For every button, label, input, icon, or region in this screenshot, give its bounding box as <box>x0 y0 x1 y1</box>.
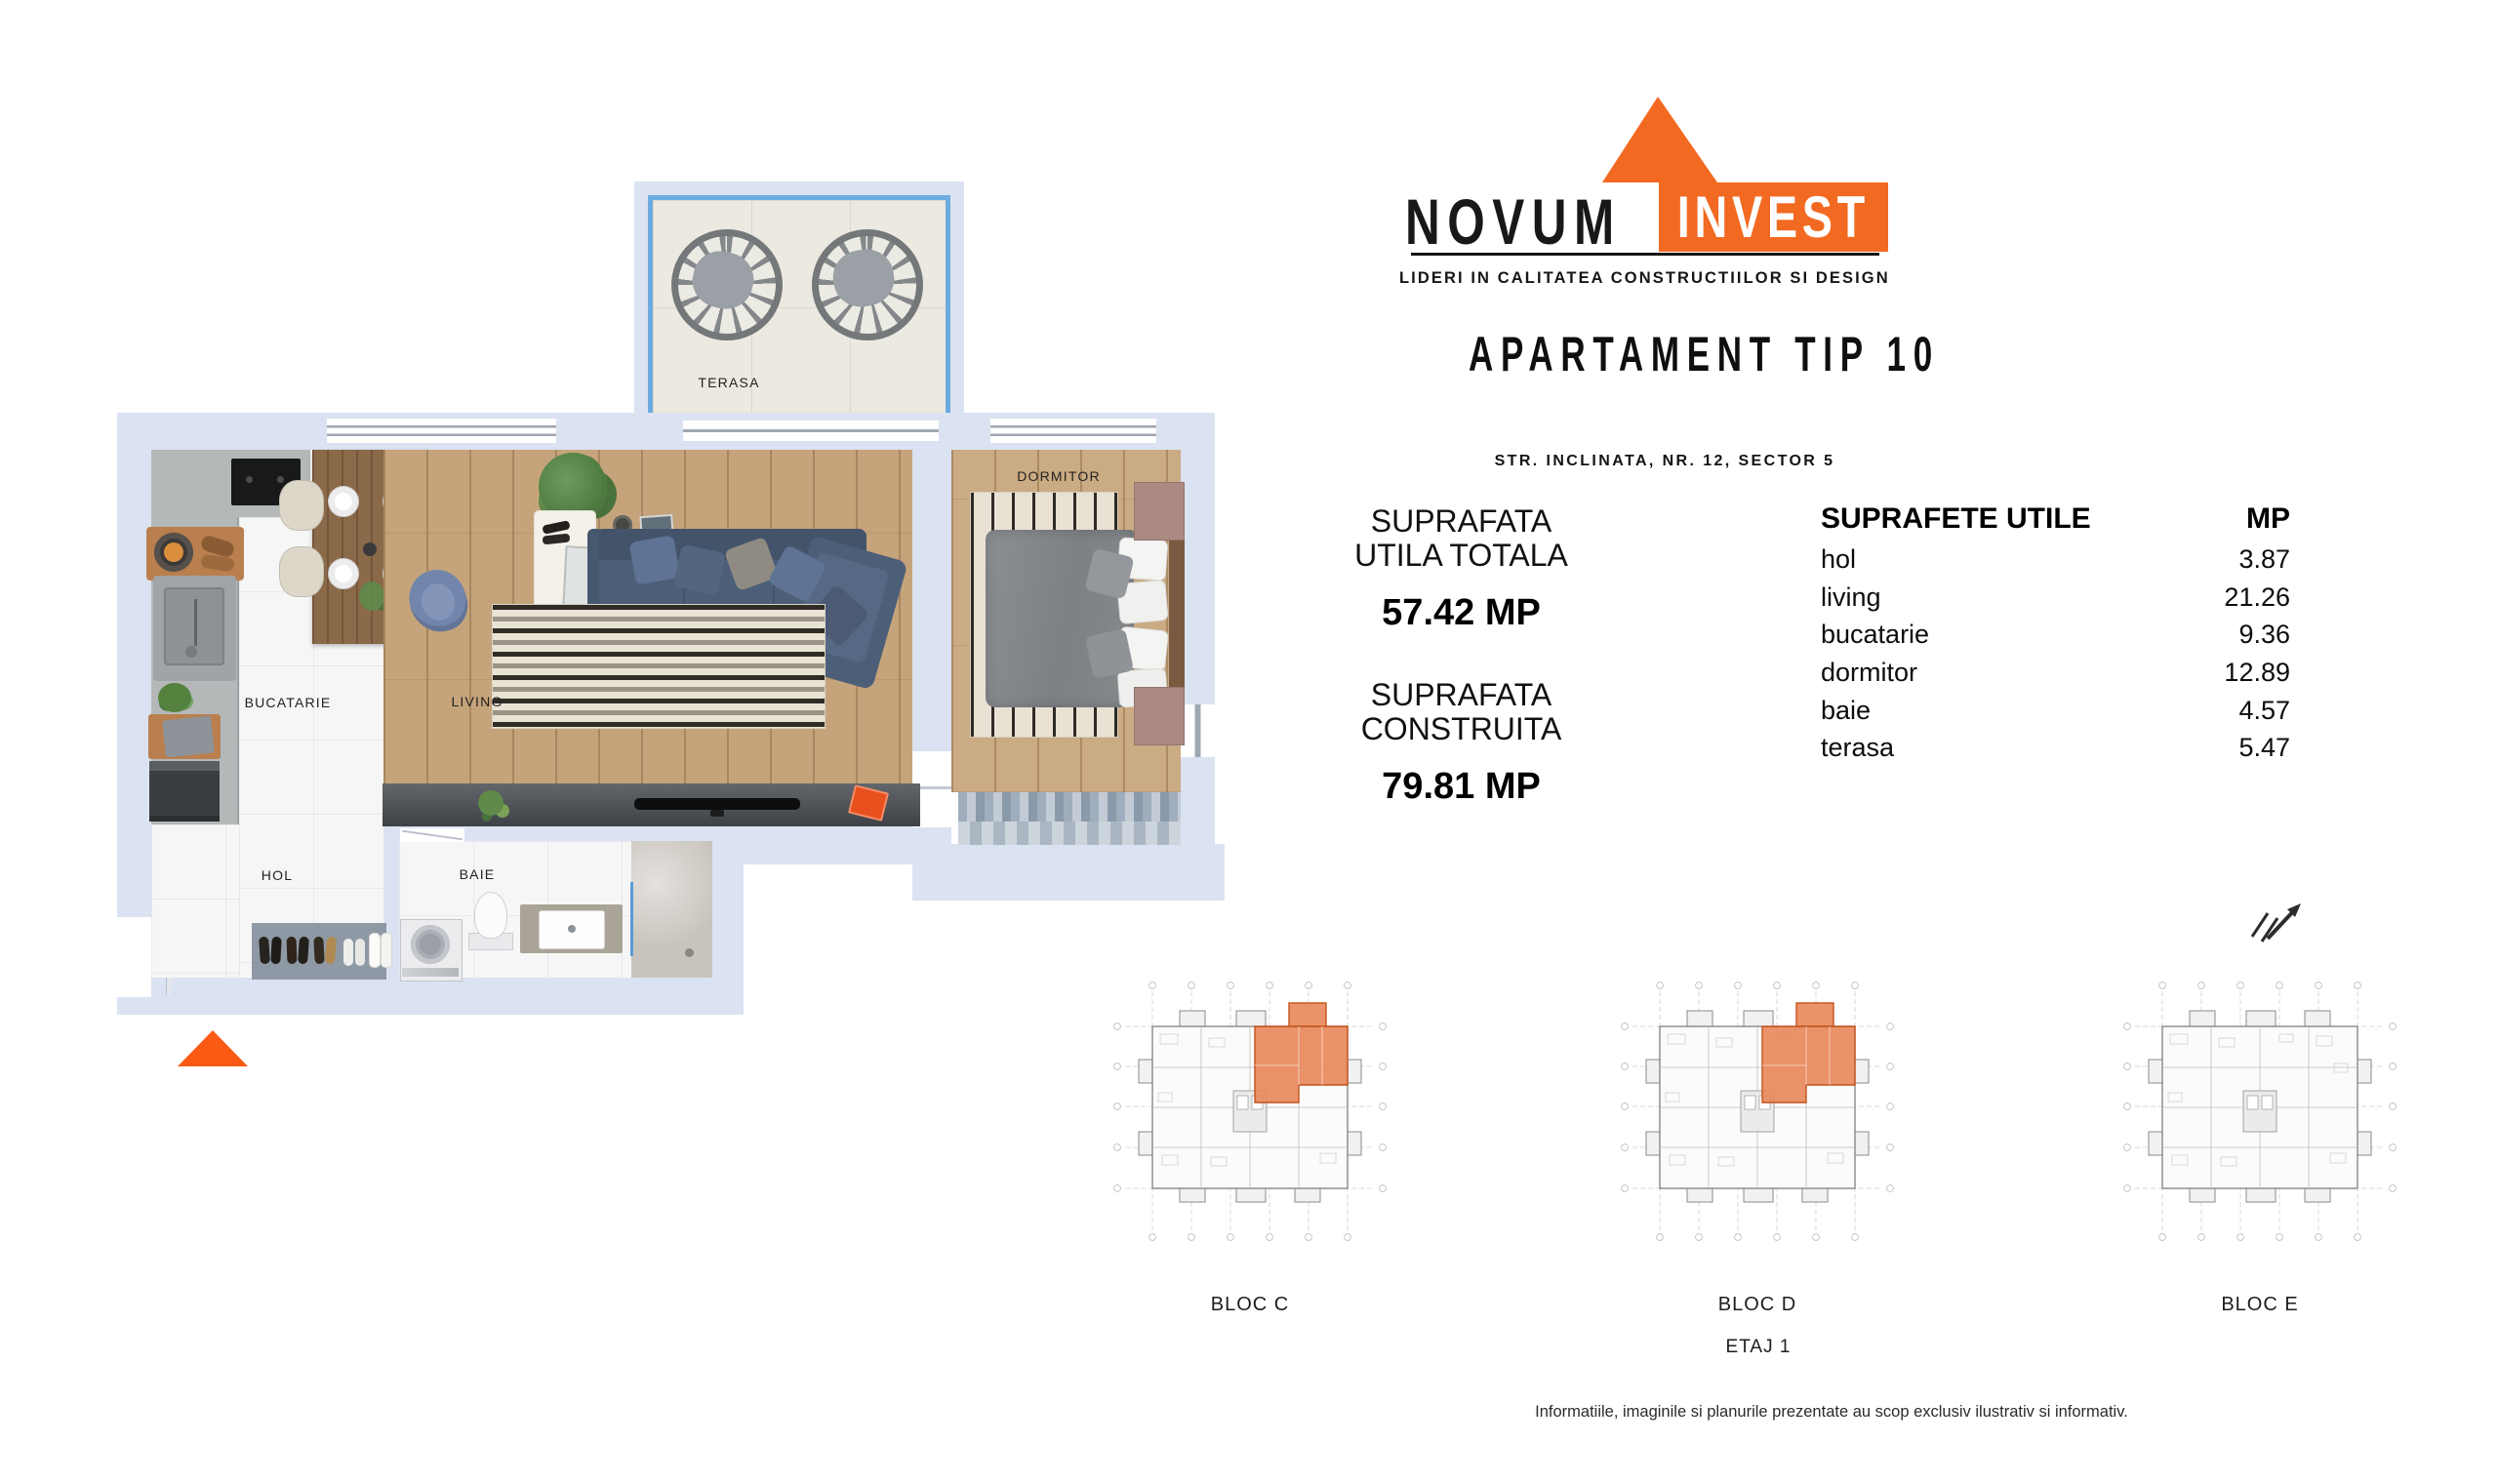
row-value: 9.36 <box>2238 620 2290 650</box>
summary-utila-value: 57.42 MP <box>1342 592 1581 634</box>
sofa-pillow-1 <box>629 535 681 584</box>
row-value: 21.26 <box>2224 582 2290 613</box>
block-label-e: BLOC E <box>2221 1294 2298 1316</box>
table-row-hol: hol 3.87 <box>1821 544 2290 582</box>
summary-construita: SUPRAFATA CONSTRUITA 79.81 MP <box>1342 678 1581 808</box>
areas-table-header: SUPRAFETE UTILE MP <box>1821 502 2290 544</box>
gray-towel <box>162 715 215 757</box>
table-row-terasa: terasa 5.47 <box>1821 733 2290 771</box>
kitchen-window <box>327 419 556 443</box>
sneaker-1 <box>369 933 381 968</box>
row-value: 5.47 <box>2238 733 2290 763</box>
block-plan-c <box>1104 976 1396 1268</box>
dining-chair-1 <box>279 480 324 531</box>
bed-headboard <box>1169 523 1185 714</box>
room-label-bucatarie: BUCATARIE <box>245 695 332 710</box>
row-name: living <box>1821 582 1881 613</box>
cooktop-knob-1 <box>246 476 253 483</box>
tv-screen <box>634 798 800 810</box>
room-label-baie: BAIE <box>460 866 496 882</box>
hol-floor <box>151 824 239 978</box>
summary-utila-line2: UTILA TOTALA <box>1342 539 1581 573</box>
apartment-floor-plan: TERASA <box>0 0 1269 1093</box>
food-pot-content <box>164 542 183 562</box>
block-label-d: BLOC D <box>1718 1294 1796 1316</box>
summary-construita-value: 79.81 MP <box>1342 766 1581 808</box>
row-name: terasa <box>1821 733 1894 763</box>
room-label-dormitor: DORMITOR <box>1017 468 1101 484</box>
table-row-living: living 21.26 <box>1821 582 2290 621</box>
areas-table-title: SUPRAFETE UTILE <box>1821 502 2091 536</box>
dormitor-curtain <box>958 792 1181 822</box>
sneaker-2 <box>381 933 392 968</box>
summary-utila-line1: SUPRAFATA <box>1342 504 1581 539</box>
logo-underline <box>1411 253 1879 256</box>
room-label-living: LIVING <box>451 694 503 709</box>
table-vase <box>363 542 377 556</box>
baie-right-wall <box>712 841 744 1015</box>
shoe-dark-2 <box>270 937 281 964</box>
table-row-bucatarie: bucatarie 9.36 <box>1821 620 2290 658</box>
row-value: 12.89 <box>2224 658 2290 688</box>
summary-utila: SUPRAFATA UTILA TOTALA 57.42 MP <box>1342 504 1581 634</box>
shoe-dark-1 <box>259 937 270 965</box>
logo-invest-text: INVEST <box>1677 183 1870 251</box>
page-title: APARTAMENT TIP 10 <box>1469 326 1878 382</box>
areas-table: SUPRAFETE UTILE MP hol 3.87 living 21.26… <box>1821 502 2290 771</box>
brand-tagline: LIDERI IN CALITATEA CONSTRUCTIILOR SI DE… <box>1399 269 1887 288</box>
summary-construita-line2: CONSTRUITA <box>1342 712 1581 746</box>
plate-1 <box>328 486 359 517</box>
tv-stand <box>710 810 724 817</box>
washing-machine-panel <box>402 968 459 977</box>
bottom-wall <box>117 978 744 1015</box>
console-plants <box>478 790 504 816</box>
row-name: hol <box>1821 544 1856 575</box>
brand-logo: NOVUM INVEST LIDERI IN CALITATEA CONSTRU… <box>1366 59 1913 302</box>
block-label-c: BLOC C <box>1211 1294 1289 1316</box>
block-plan-d <box>1611 976 1904 1268</box>
shoe-dark-4 <box>298 937 309 965</box>
floor-label: ETAJ 1 <box>1726 1337 1792 1358</box>
row-name: baie <box>1821 696 1871 726</box>
shower-drain <box>685 948 694 957</box>
logo-invest-box: INVEST <box>1659 182 1888 252</box>
dining-chair-2 <box>279 546 324 597</box>
kitchen-faucet <box>194 599 197 646</box>
sofa-pillow-2 <box>673 544 726 596</box>
nightstand-bottom <box>1134 687 1185 745</box>
row-value: 3.87 <box>2238 544 2290 575</box>
north-arrow-icon <box>2244 896 2307 948</box>
cooktop-knob-2 <box>277 476 284 483</box>
shoe-dark-3 <box>287 937 298 964</box>
shoe-dark-5 <box>313 937 324 964</box>
living-rug <box>493 605 825 728</box>
areas-table-unit: MP <box>2246 502 2290 536</box>
dormitor-curtain-sheer <box>958 822 1181 845</box>
terasa-sliding-door <box>683 421 939 441</box>
kitchen-appliance <box>149 761 220 822</box>
table-greenery <box>359 582 384 611</box>
entrance-opening <box>117 917 151 997</box>
logo-roof-icon <box>1602 97 1717 182</box>
slipper-1 <box>343 939 353 966</box>
dormitor-right-wall <box>1181 442 1215 901</box>
room-label-hol: HOL <box>262 867 293 883</box>
address: STR. INCLINATA, NR. 12, SECTOR 5 <box>1421 453 1909 470</box>
slipper-2 <box>355 939 365 966</box>
sink-faucet <box>568 925 576 933</box>
summary-construita-line1: SUPRAFATA <box>1342 678 1581 712</box>
row-name: bucatarie <box>1821 620 1929 650</box>
logo-novum-text: NOVUM <box>1405 189 1622 254</box>
bed-pillow-gray-2 <box>1085 628 1134 679</box>
row-value: 4.57 <box>2238 696 2290 726</box>
apartment-sheet: TERASA <box>0 0 2498 1484</box>
nightstand-top <box>1134 482 1185 541</box>
washing-machine-drum <box>411 925 450 964</box>
toilet-bowl <box>474 892 507 939</box>
shower-floor <box>631 841 712 978</box>
entrance-marker-icon <box>178 1030 248 1066</box>
table-row-dormitor: dormitor 12.89 <box>1821 658 2290 696</box>
disclaimer: Informatiile, imaginile si planurile pre… <box>1402 1403 2261 1422</box>
row-name: dormitor <box>1821 658 1917 688</box>
table-row-baie: baie 4.57 <box>1821 696 2290 734</box>
dormitor-window <box>990 419 1156 443</box>
living-baie-wall-thick <box>712 826 951 864</box>
dormitor-bottom-wall <box>912 844 1225 901</box>
kitchen-plant <box>158 683 191 712</box>
shower-glass <box>630 882 633 956</box>
plate-3 <box>328 558 359 589</box>
block-plan-e <box>2114 976 2406 1268</box>
room-label-terasa: TERASA <box>698 375 759 390</box>
kitchen-drain <box>185 646 197 658</box>
